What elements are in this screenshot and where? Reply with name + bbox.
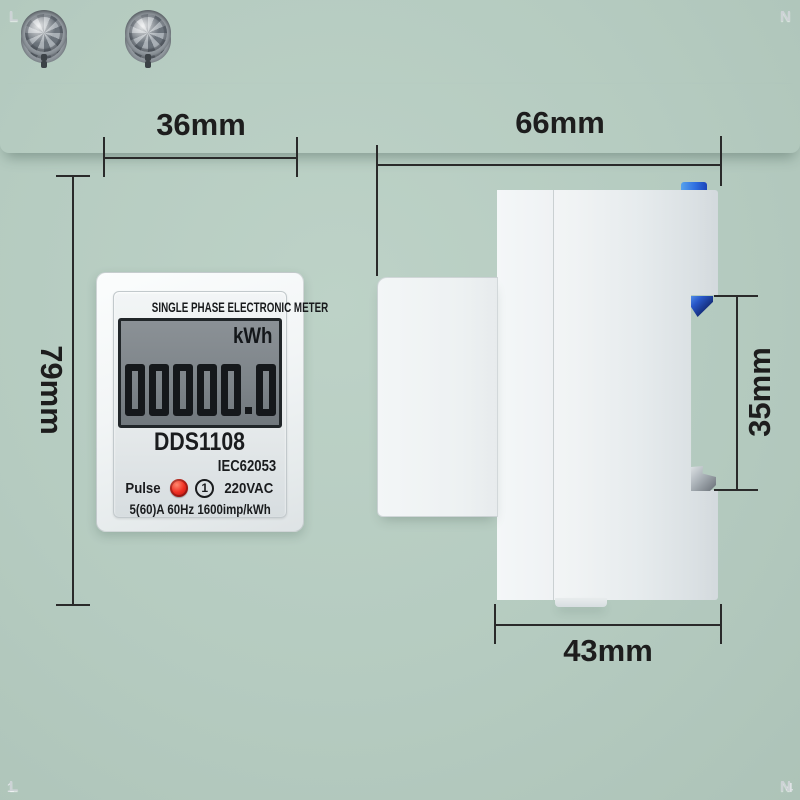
dimension-front-height-line: [72, 176, 74, 606]
dimension-tick: [296, 137, 298, 177]
lcd-unit-label: kWh: [233, 323, 272, 349]
din-rail-hook-icon: [691, 466, 716, 491]
voltage-rating: 220VAC: [225, 480, 274, 497]
terminal-label-line: L: [9, 778, 18, 795]
lcd-digit-zero: [173, 364, 193, 416]
dimension-front-width-label: 36mm: [104, 107, 298, 143]
dimension-din-clip-label: 35mm: [742, 320, 778, 464]
dimension-tick: [720, 136, 722, 186]
dimension-din-clip-line: [736, 296, 738, 490]
faceplate-title: SINGLE PHASE ELECTRONIC METER: [114, 299, 286, 317]
dimension-tick: [494, 604, 496, 644]
dimension-side-depth-line: [377, 164, 721, 166]
din-rail-clip-icon: [691, 296, 713, 317]
standard-label-text: IEC62053: [218, 458, 276, 476]
faceplate-title-text: SINGLE PHASE ELECTRONIC METER: [152, 299, 328, 315]
pulse-label: Pulse: [126, 480, 161, 497]
dimension-rear-depth-label: 43mm: [500, 633, 716, 669]
side-front-bezel-edge: [497, 190, 554, 600]
lcd-display: kWh: [118, 318, 282, 428]
dimension-front-width-line: [104, 157, 298, 159]
dimension-side-depth-label: 66mm: [455, 105, 665, 141]
lcd-digits: [121, 364, 279, 416]
lcd-digit-zero: [256, 364, 276, 416]
dimension-tick: [56, 175, 90, 177]
pulse-spec-row: Pulse 1 220VAC: [114, 478, 286, 498]
lcd-digit-zero: [197, 364, 217, 416]
phase-1-icon: 1: [195, 479, 214, 498]
lcd-decimal-point: [245, 407, 252, 414]
terminal-screw-hole: [125, 10, 171, 56]
dimension-tick: [714, 489, 758, 491]
terminal-label-line: L: [9, 8, 18, 25]
model-number: DDS1108: [114, 428, 286, 457]
terminal-screw-hole: [21, 10, 67, 56]
side-bottom-tab: [555, 598, 607, 607]
dimension-tick: [720, 604, 722, 644]
terminal-label-neutral: N: [780, 778, 791, 795]
faceplate-panel: SINGLE PHASE ELECTRONIC METER kWh DDS110…: [113, 291, 287, 518]
side-face-protrusion: [377, 277, 498, 517]
lcd-digit-zero: [221, 364, 241, 416]
product-dimension-diagram: L N 1 4 SINGLE PHASE ELECTRONIC METER kW…: [0, 0, 800, 800]
lcd-digit-zero: [125, 364, 145, 416]
front-housing: SINGLE PHASE ELECTRONIC METER kWh DDS110…: [96, 272, 304, 532]
pulse-led-icon: [170, 479, 188, 497]
dimension-tick: [56, 604, 90, 606]
side-housing: [497, 190, 718, 600]
terminal-label-neutral: N: [780, 8, 791, 25]
dimension-front-height-label: 79mm: [33, 320, 69, 460]
current-frequency-rating: 5(60)A 60Hz 1600imp/kWh: [114, 501, 286, 519]
lcd-digit-zero: [149, 364, 169, 416]
dimension-rear-depth-line: [495, 624, 722, 626]
model-number-text: DDS1108: [155, 428, 246, 457]
terminal-screw-icon: [129, 14, 167, 52]
standard-label: IEC62053: [205, 458, 276, 476]
dimension-tick: [714, 295, 758, 297]
current-frequency-rating-text: 5(60)A 60Hz 1600imp/kWh: [129, 501, 270, 517]
terminal-screw-icon: [25, 14, 63, 52]
dimension-extension-line: [376, 145, 378, 276]
dimension-tick: [103, 137, 105, 177]
front-top-terminal-block: L N 1 4: [0, 0, 800, 84]
